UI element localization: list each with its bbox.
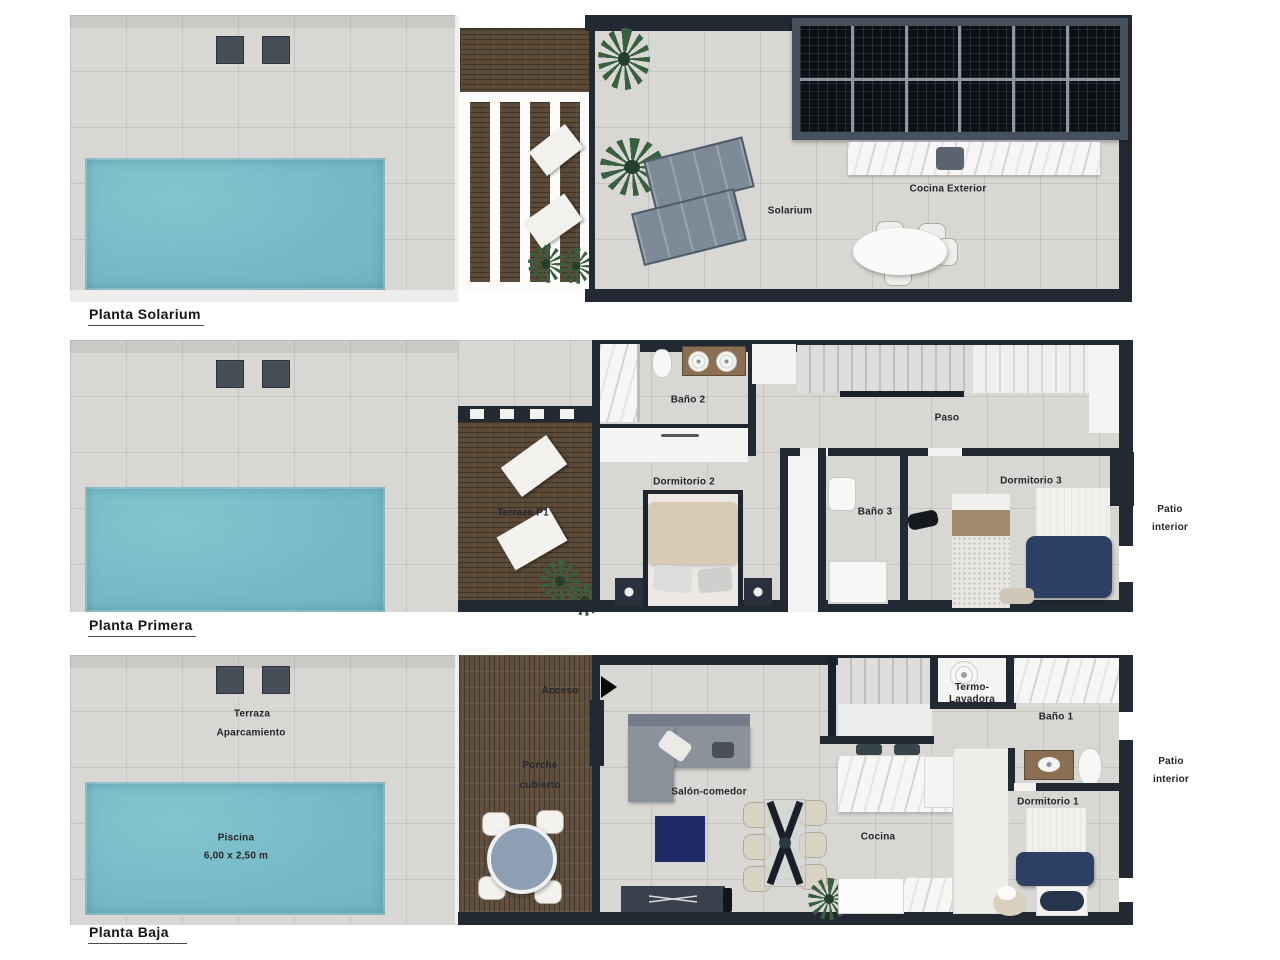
terraza-p1-upper-tile xyxy=(458,340,595,406)
outdoor-kitchen-counter xyxy=(848,142,1100,175)
ac-unit xyxy=(216,666,244,694)
kitchen-tall-unit xyxy=(924,756,956,808)
rug xyxy=(1000,588,1034,604)
bed-pillow xyxy=(653,564,694,594)
solar-panel-cell xyxy=(1015,81,1066,133)
wall xyxy=(592,655,600,703)
beam-light xyxy=(560,409,574,419)
wall xyxy=(818,448,826,612)
plan-title-solarium: Planta Solarium xyxy=(88,306,204,326)
room-label-porche-cubierto: Porche cubierto xyxy=(519,756,560,796)
kitchen-island xyxy=(838,878,904,914)
beam-light xyxy=(470,409,484,419)
stair-rail xyxy=(840,391,964,397)
solar-panel-cell xyxy=(908,26,959,78)
entrance-door-leaf xyxy=(590,700,604,766)
tv-console-x-detail xyxy=(621,886,725,912)
vanity-counter xyxy=(1024,750,1074,780)
room-label-cocina: Cocina xyxy=(861,830,896,845)
pouf xyxy=(998,886,1016,900)
wall xyxy=(592,340,600,612)
plant xyxy=(598,28,650,90)
dining-table-x-legs xyxy=(765,800,805,886)
wall xyxy=(1008,748,1015,786)
ac-unit xyxy=(216,360,244,388)
room-label-acceso: Acceso xyxy=(542,684,579,699)
wall xyxy=(589,15,595,302)
pergola-wood-slot xyxy=(500,102,520,282)
sofa-back xyxy=(628,714,750,726)
stair-landing xyxy=(1089,345,1119,433)
solar-panel-grid xyxy=(800,26,1120,132)
area-rug xyxy=(655,816,705,862)
room-label-cocina-exterior: Cocina Exterior xyxy=(910,182,987,197)
bathroom-shower-floor xyxy=(1014,658,1119,703)
pool-label-piscina: Piscina xyxy=(218,831,254,846)
wall xyxy=(592,766,600,912)
tv-console xyxy=(621,886,725,912)
solar-panel-array xyxy=(792,18,1128,140)
room-label-bano1: Baño 1 xyxy=(1039,710,1074,725)
wardrobe-handle xyxy=(661,434,699,437)
wardrobe xyxy=(600,424,748,462)
solar-panel-cell xyxy=(1069,26,1120,78)
room-label-terraza: Terraza xyxy=(234,707,270,722)
ac-unit xyxy=(216,36,244,64)
solar-panel-cell xyxy=(800,81,851,133)
shower-glass xyxy=(637,344,640,422)
plant xyxy=(528,245,564,283)
corridor xyxy=(788,456,818,612)
floorplan-sheet: Solarium Cocina Exterior Planta Solarium xyxy=(0,0,1280,960)
single-bed-pillow-band xyxy=(952,494,1010,510)
bed-duvet xyxy=(648,502,738,564)
nightstand xyxy=(615,578,643,606)
solar-panel-cell xyxy=(854,81,905,133)
dining-table xyxy=(764,799,806,887)
bathroom-sink xyxy=(688,351,709,372)
outdoor-kitchen-sink xyxy=(936,147,964,170)
bathroom-sink xyxy=(716,351,737,372)
toilet xyxy=(1078,748,1102,786)
porch-round-table xyxy=(487,824,557,894)
single-bed xyxy=(1026,808,1086,858)
terrace-pergola-gap xyxy=(455,15,459,302)
patio-window-gap xyxy=(1119,878,1133,902)
bed-throw-blanket xyxy=(1016,852,1094,886)
soundbar xyxy=(723,888,732,912)
shower xyxy=(600,344,638,422)
wall xyxy=(780,448,788,612)
room-label-solarium: Solarium xyxy=(768,204,812,219)
terrace-top-shadow xyxy=(70,340,458,353)
ac-unit xyxy=(262,36,290,64)
kitchen-appliance xyxy=(904,878,952,912)
plan-title-primera: Planta Primera xyxy=(88,617,196,637)
room-label-aparcamiento: Aparcamiento xyxy=(216,726,285,741)
wall xyxy=(1119,655,1133,912)
terraza-p1-beam xyxy=(458,406,595,422)
beam-light xyxy=(530,409,544,419)
door-opening xyxy=(1014,783,1036,791)
patio-window-gap xyxy=(1119,712,1133,740)
bathroom-sink-unit xyxy=(828,477,856,511)
wall xyxy=(930,655,938,705)
solar-panel-cell xyxy=(800,26,851,78)
kitchen-stool xyxy=(856,744,882,755)
shower-tray xyxy=(828,560,888,604)
ac-unit xyxy=(262,666,290,694)
terrace-top-shadow xyxy=(70,15,458,28)
room-label-bano3: Baño 3 xyxy=(858,505,893,520)
pool-label-dimensions: 6,00 x 2,50 m xyxy=(204,849,268,864)
bench-cushion xyxy=(1040,891,1084,911)
beam-light xyxy=(500,409,514,419)
entrance-arrow-icon xyxy=(601,676,617,698)
pool-walkway xyxy=(70,290,458,302)
stair-landing xyxy=(838,704,932,736)
room-label-dormitorio1: Dormitorio 1 xyxy=(1017,795,1079,810)
toilet xyxy=(652,349,672,378)
vanity-oval-sink xyxy=(1038,757,1060,772)
room-label-patio-interior: Patio interior xyxy=(1152,501,1188,537)
pool-first-floor-view xyxy=(85,487,385,612)
plan-title-baja: Planta Baja xyxy=(88,924,187,944)
pergola-wood-slot xyxy=(470,102,490,282)
room-label-salon-comedor: Salón-comedor xyxy=(671,785,746,800)
wall xyxy=(458,912,1133,925)
kitchen-stool xyxy=(894,744,920,755)
room-label-patio-interior: Patio interior xyxy=(1153,753,1189,789)
pool-solarium-level xyxy=(85,158,385,290)
wall xyxy=(1006,655,1014,703)
bed-pillow xyxy=(697,567,733,594)
pergola-wood-strip xyxy=(460,28,592,94)
staircase-upper-flight xyxy=(973,345,1089,393)
solar-panel-cell xyxy=(908,81,959,133)
single-bed-blanket-band xyxy=(952,510,1010,536)
bed-throw-blanket xyxy=(1026,536,1112,598)
solar-panel-cell xyxy=(961,81,1012,133)
sofa-pillow xyxy=(712,742,734,758)
wall xyxy=(1110,452,1134,506)
door-opening xyxy=(928,448,962,456)
room-label-dormitorio2: Dormitorio 2 xyxy=(653,475,715,490)
room-label-termo-lavadora: Termo- Lavadora xyxy=(949,682,995,706)
solar-panel-cell xyxy=(854,26,905,78)
nightstand xyxy=(744,578,772,606)
solar-panel-cell xyxy=(961,26,1012,78)
outdoor-oval-table xyxy=(853,228,947,275)
wall xyxy=(585,289,1132,302)
wall xyxy=(820,736,934,744)
room-label-paso: Paso xyxy=(935,411,960,426)
room-label-terraza-p1: Terraza P1 xyxy=(497,506,549,521)
staircase xyxy=(838,658,932,704)
solar-panel-cell xyxy=(1069,81,1120,133)
room-label-bano2: Baño 2 xyxy=(671,393,706,408)
ac-unit xyxy=(262,360,290,388)
wall xyxy=(900,448,908,612)
patio-window-gap xyxy=(1119,546,1133,582)
plant xyxy=(560,248,592,284)
staircase xyxy=(797,345,973,393)
room-label-dormitorio3: Dormitorio 3 xyxy=(1000,474,1062,489)
landing-closet xyxy=(752,344,796,384)
stair-rail xyxy=(828,657,836,737)
solar-panel-cell xyxy=(1015,26,1066,78)
